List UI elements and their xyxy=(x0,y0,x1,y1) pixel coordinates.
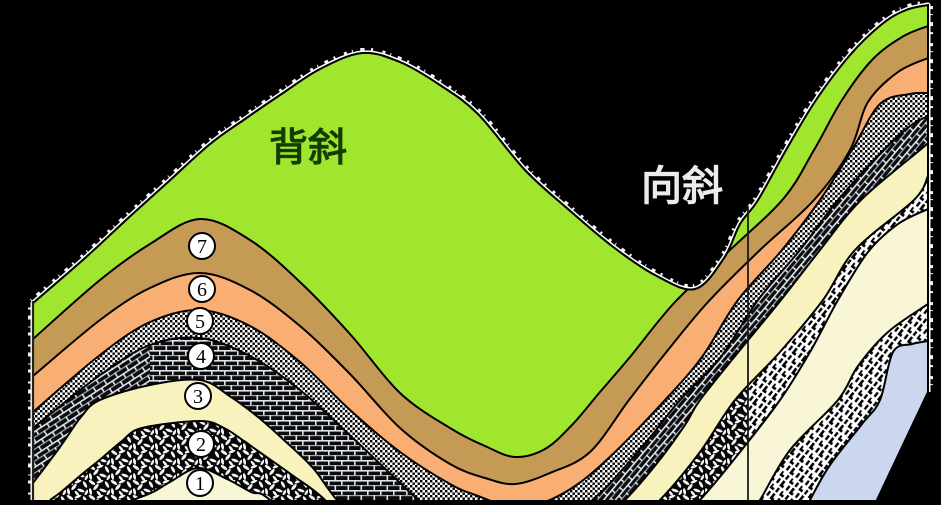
svg-text:3: 3 xyxy=(193,386,203,408)
svg-text:5: 5 xyxy=(195,311,205,333)
svg-text:4: 4 xyxy=(196,346,206,368)
svg-text:向斜: 向斜 xyxy=(641,163,723,209)
svg-text:背斜: 背斜 xyxy=(269,127,347,170)
svg-text:1: 1 xyxy=(195,473,205,495)
svg-text:7: 7 xyxy=(197,236,207,258)
svg-text:2: 2 xyxy=(196,434,206,456)
svg-text:6: 6 xyxy=(197,279,207,301)
